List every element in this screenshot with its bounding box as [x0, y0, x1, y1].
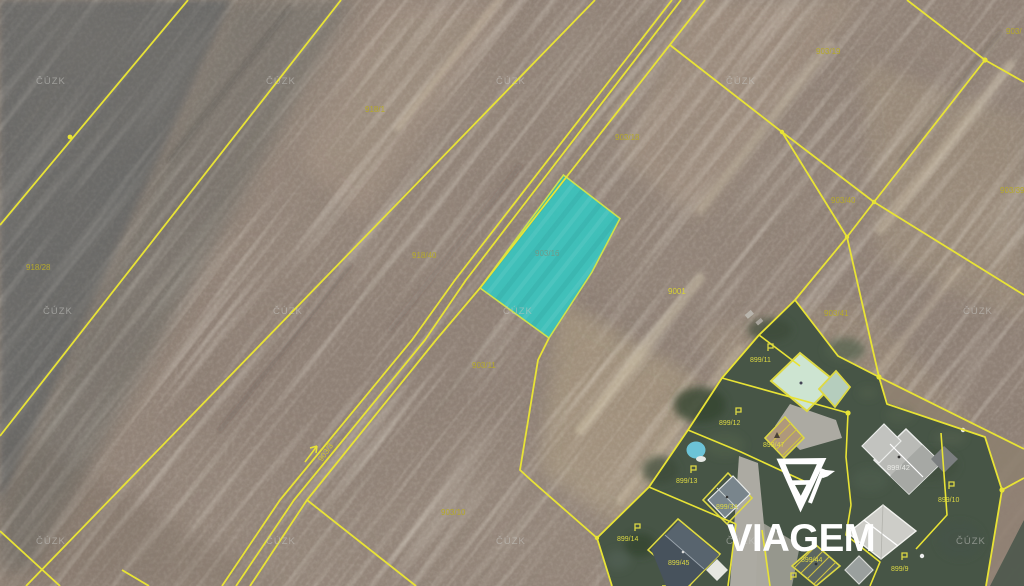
svg-text:ČÚZK: ČÚZK — [963, 306, 993, 317]
svg-text:918/28: 918/28 — [26, 263, 51, 272]
svg-text:899/45: 899/45 — [668, 560, 690, 567]
svg-text:ČÚZK: ČÚZK — [496, 76, 526, 87]
svg-text:ČÚZK: ČÚZK — [36, 76, 66, 87]
svg-text:ČÚZK: ČÚZK — [266, 76, 296, 87]
svg-text:899/11: 899/11 — [750, 357, 771, 364]
svg-text:903/39: 903/39 — [1000, 186, 1024, 195]
svg-text:899/10: 899/10 — [938, 497, 960, 504]
svg-text:903/11: 903/11 — [472, 361, 496, 370]
svg-text:903/18: 903/18 — [615, 133, 640, 142]
svg-text:899/34: 899/34 — [716, 504, 738, 511]
svg-text:903/: 903/ — [1006, 27, 1022, 36]
svg-text:ČÚZK: ČÚZK — [36, 536, 66, 547]
svg-text:ČÚZK: ČÚZK — [496, 536, 526, 547]
svg-text:903/16: 903/16 — [535, 249, 560, 258]
svg-text:ČÚZK: ČÚZK — [273, 306, 303, 317]
svg-text:ČÚZK: ČÚZK — [956, 536, 986, 547]
svg-text:ČÚZK: ČÚZK — [503, 306, 533, 317]
svg-text:9001: 9001 — [668, 287, 686, 296]
svg-text:903/10: 903/10 — [441, 508, 466, 517]
svg-text:899/13: 899/13 — [676, 478, 698, 485]
svg-text:918/40: 918/40 — [412, 251, 437, 260]
svg-text:903/41: 903/41 — [824, 309, 849, 318]
svg-text:ČÚZK: ČÚZK — [266, 536, 296, 547]
svg-text:899/47: 899/47 — [763, 442, 785, 449]
svg-text:899/42: 899/42 — [887, 463, 910, 472]
svg-text:918/1: 918/1 — [365, 105, 386, 114]
svg-text:VIAGEM: VIAGEM — [727, 517, 875, 560]
svg-text:899/14: 899/14 — [617, 536, 639, 543]
svg-text:903/40: 903/40 — [831, 196, 856, 205]
svg-text:ČÚZK: ČÚZK — [43, 306, 73, 317]
svg-text:903/19: 903/19 — [816, 47, 841, 56]
svg-text:ČÚZK: ČÚZK — [726, 76, 756, 87]
svg-text:899/12: 899/12 — [719, 420, 741, 427]
svg-text:899/9: 899/9 — [891, 566, 909, 573]
